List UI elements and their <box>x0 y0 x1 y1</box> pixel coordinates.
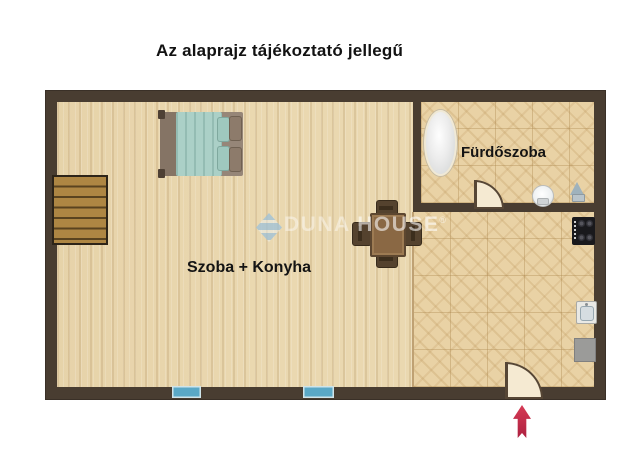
washbasin-icon <box>570 182 585 202</box>
stairs-icon <box>52 175 108 245</box>
pillow-icon <box>229 147 242 172</box>
sink-basin <box>580 306 594 321</box>
page-title: Az alaprajz tájékoztató jellegű <box>156 41 403 61</box>
bathroom-wall-vertical <box>413 102 421 212</box>
basin-base <box>572 194 585 202</box>
floorplan-page: Az alaprajz tájékoztató jellegű Szoba + … <box>0 0 640 463</box>
appliance-icon <box>574 338 596 362</box>
kitchen-sink-icon <box>576 301 597 324</box>
bed-post <box>158 110 165 119</box>
stove-knobs <box>574 221 576 241</box>
bed-blanket <box>176 112 222 176</box>
toilet-icon <box>532 185 554 207</box>
entrance-up-arrow-icon <box>513 405 531 438</box>
kitchen-floor <box>413 212 594 387</box>
window-icon <box>172 386 201 398</box>
stove-icon <box>572 217 595 245</box>
window-icon <box>303 386 334 398</box>
dining-table-icon <box>370 213 406 257</box>
bathtub-icon <box>424 110 457 176</box>
bathroom-label: Fürdőszoba <box>461 144 546 161</box>
pillow-icon <box>229 116 242 141</box>
toilet-tank <box>537 198 549 205</box>
bed-post <box>158 169 165 178</box>
main-room-label: Szoba + Konyha <box>187 259 311 277</box>
floorplan: Szoba + Konyha Fürdőszoba <box>45 90 606 400</box>
double-bed-icon <box>160 112 243 176</box>
chair-icon <box>352 222 372 246</box>
